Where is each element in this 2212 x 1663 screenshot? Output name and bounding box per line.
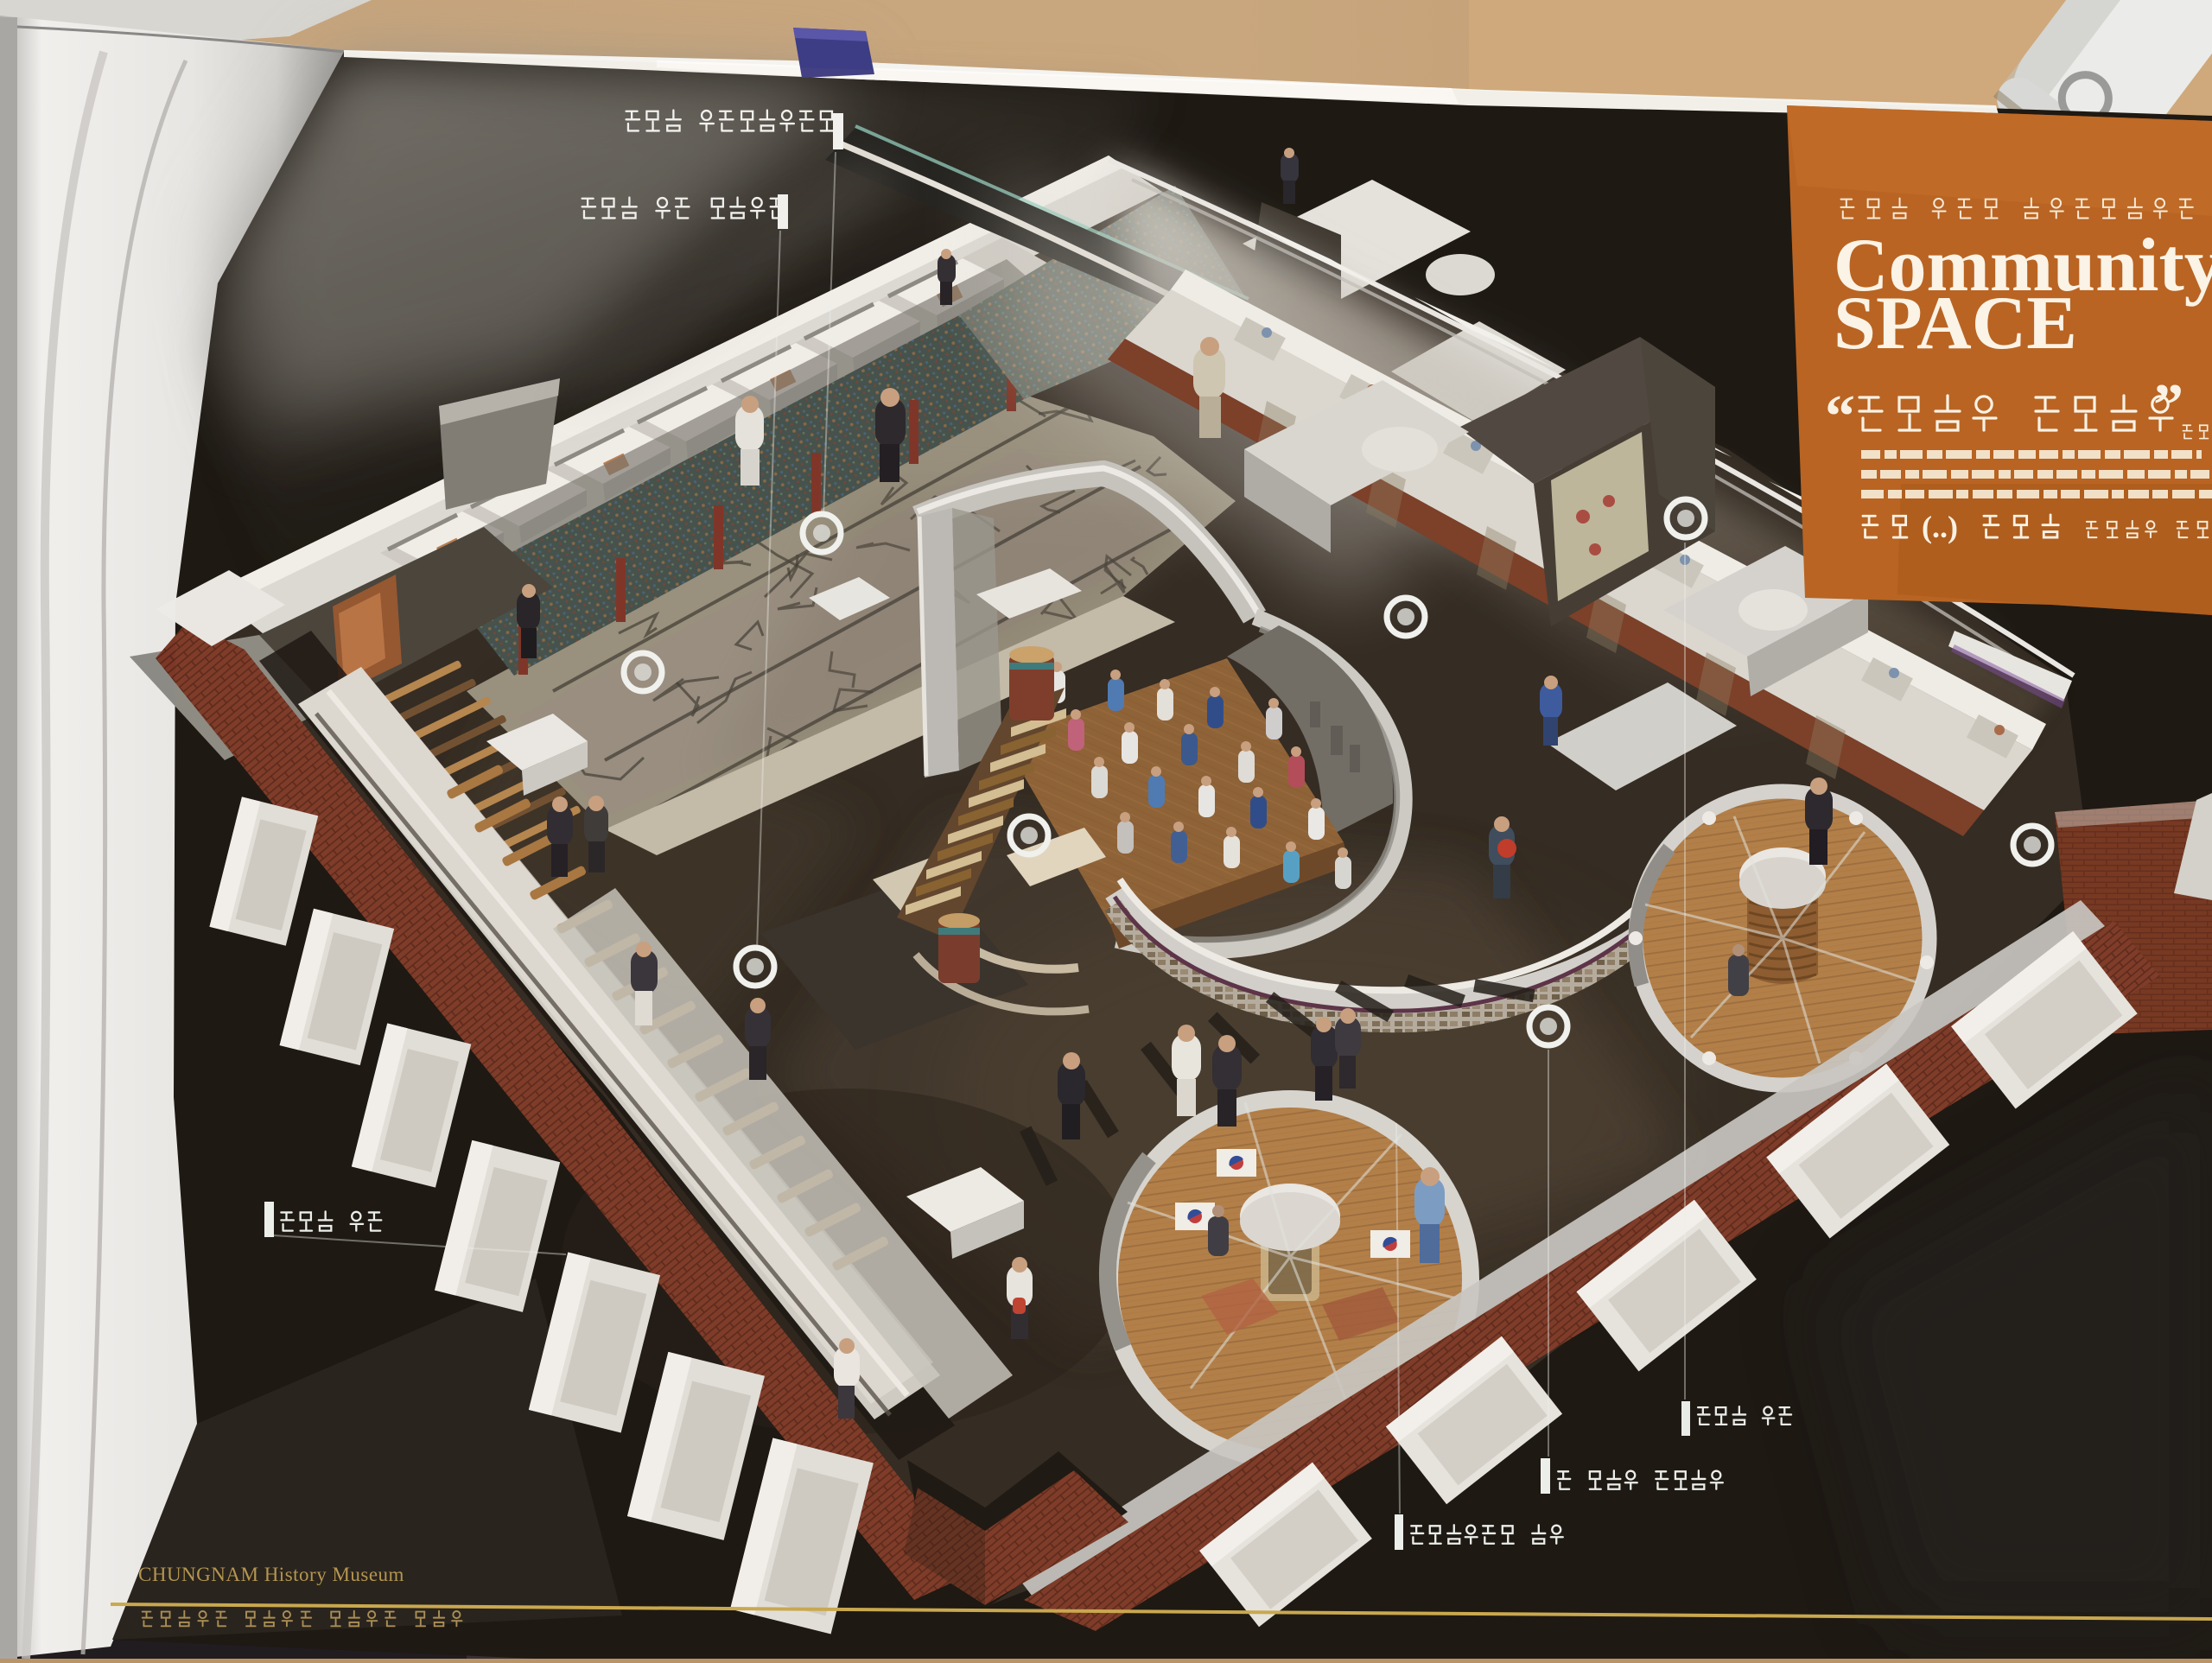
svg-text:SPACE: SPACE [1834, 282, 2077, 365]
svg-text:CHUNGNAM History Museum: CHUNGNAM History Museum [138, 1564, 404, 1585]
svg-text:“: “ [1825, 384, 1855, 450]
svg-text:(..): (..) [1922, 510, 1958, 544]
svg-text:”: ” [2153, 372, 2183, 439]
